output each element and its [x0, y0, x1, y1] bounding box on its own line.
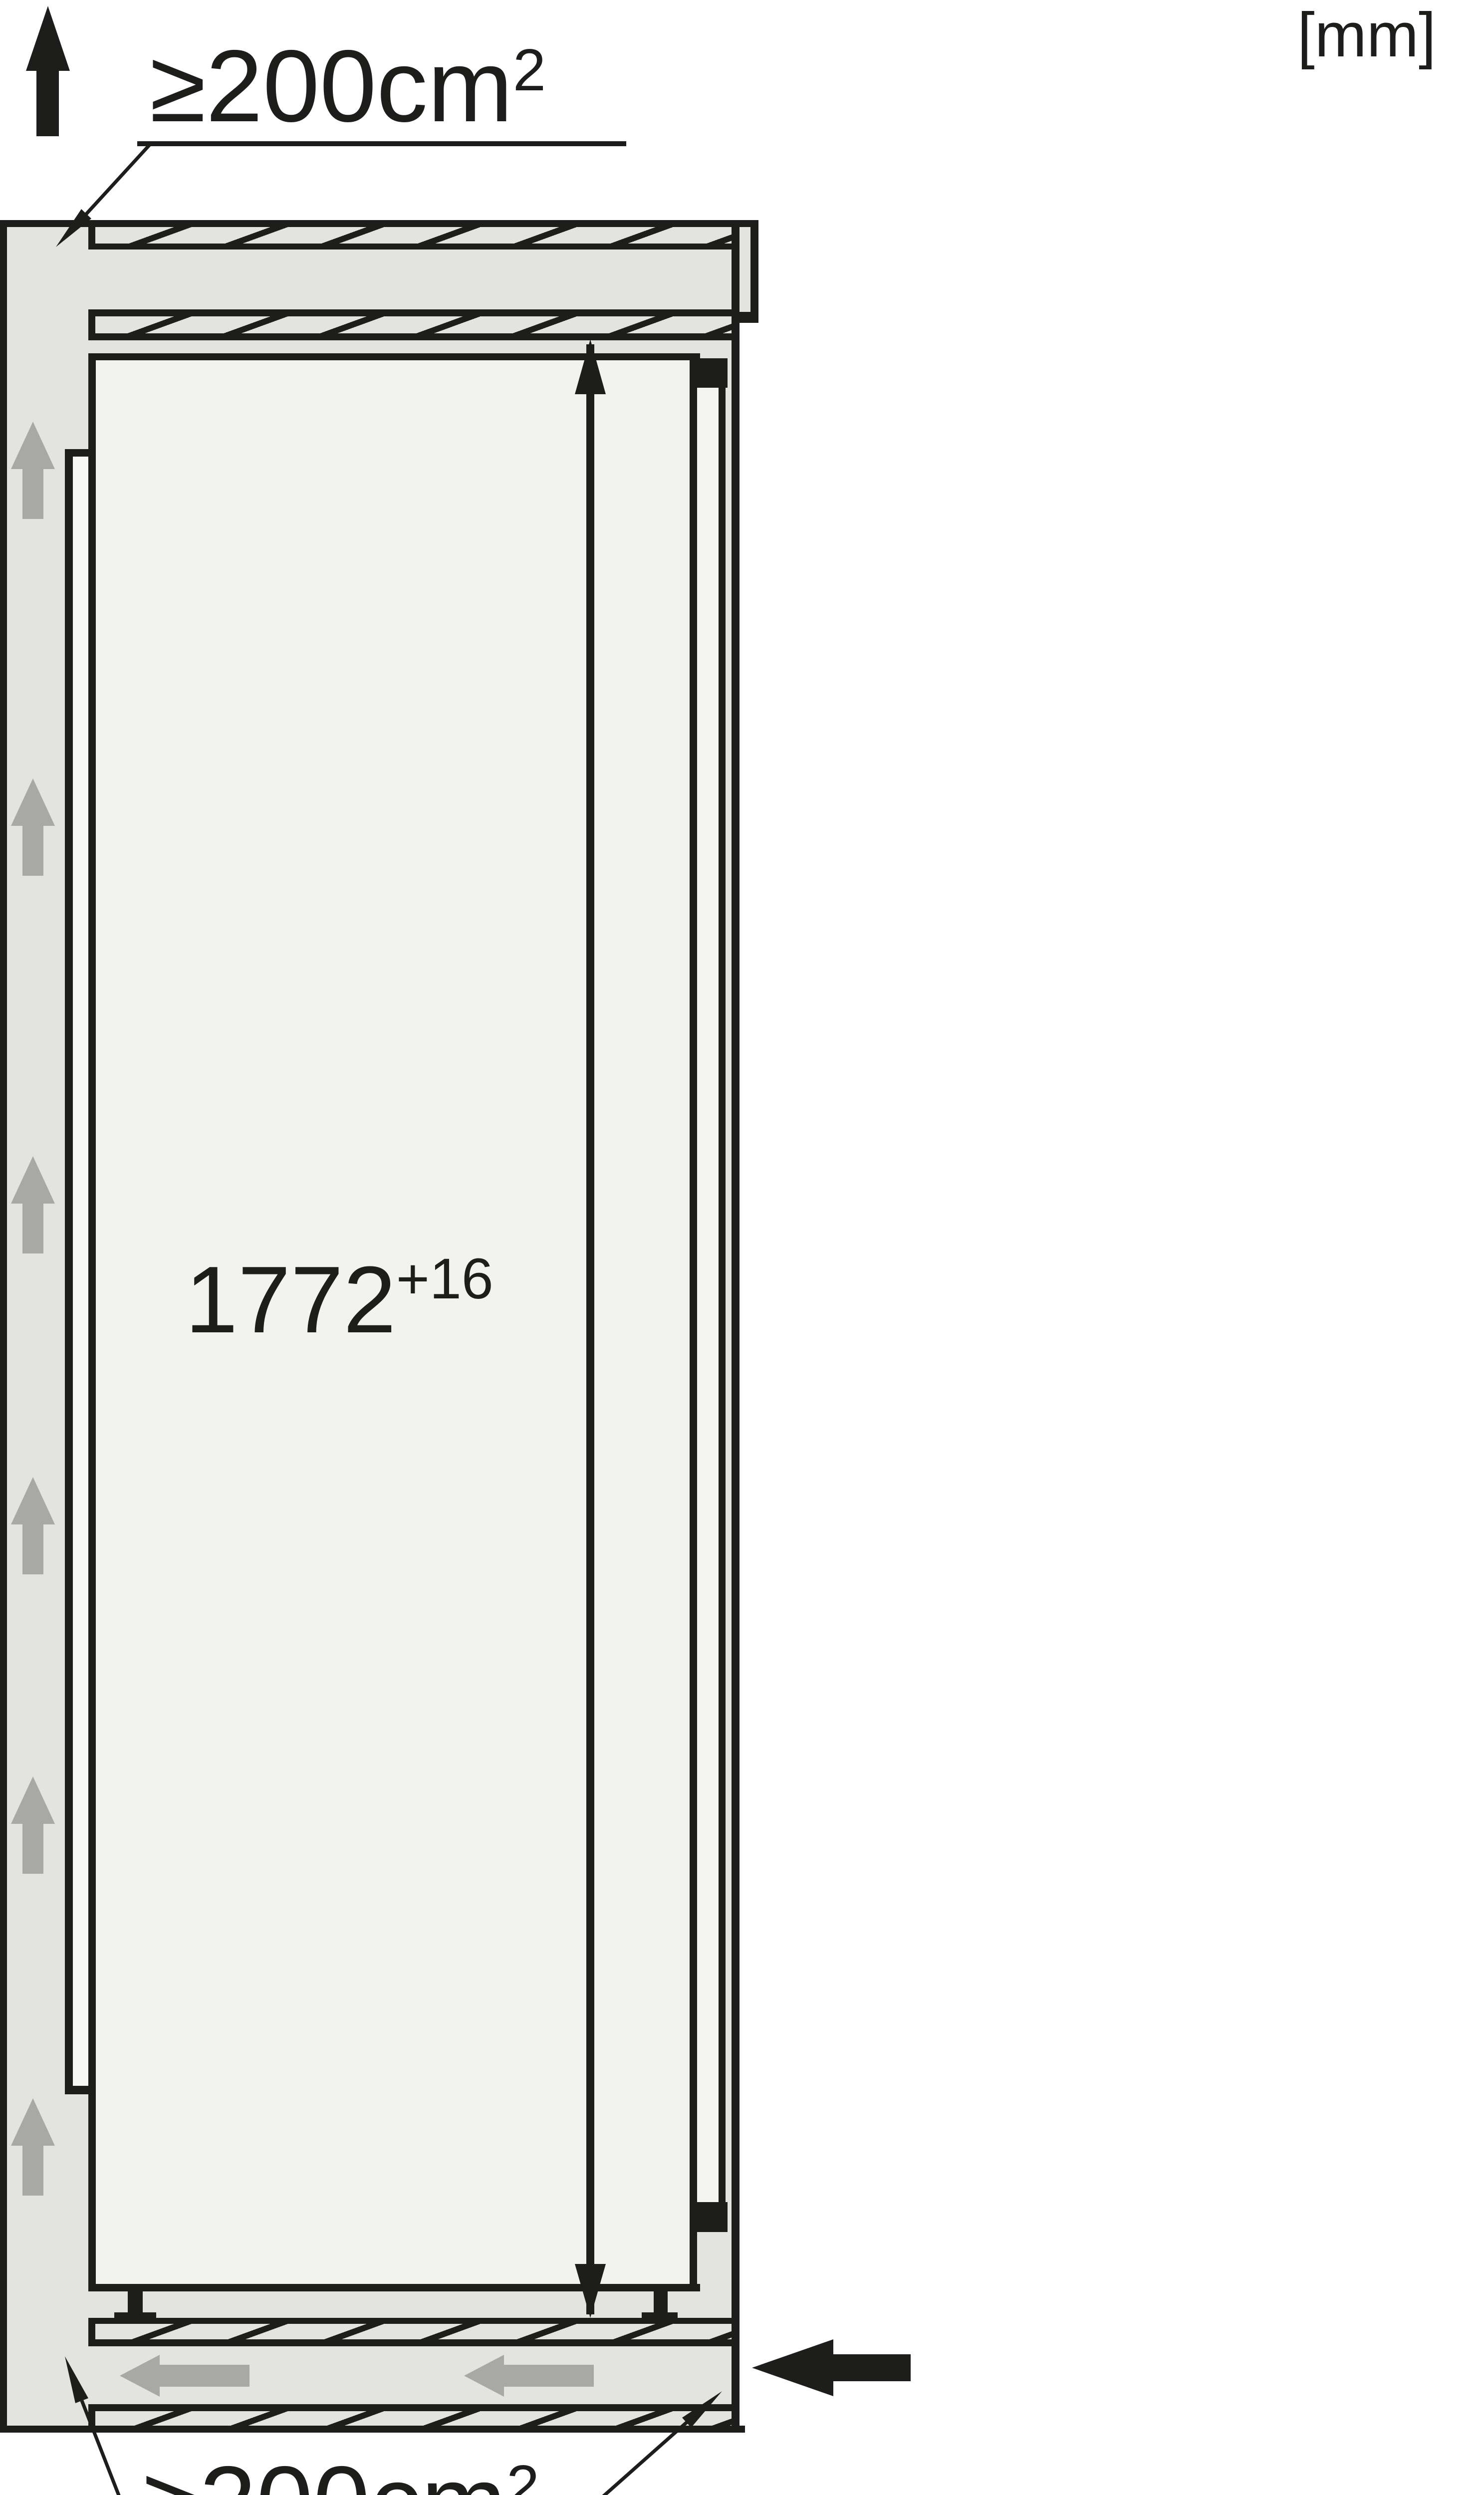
dimension-arrow: [575, 339, 606, 2318]
airflow-up-arrows: [11, 422, 55, 2196]
leader-arrowhead-icon: [682, 2391, 722, 2428]
exhaust-air-arrow-icon: [26, 6, 70, 136]
unit-label: [mm]: [1297, 4, 1436, 66]
airflow-left-arrow-icon: [120, 2355, 249, 2397]
bottom-vent-area-sup: 2: [506, 2453, 539, 2495]
airflow-up-arrow-icon: [11, 1477, 55, 1574]
niche-height-dimension-label: 1772+16: [185, 1252, 494, 1347]
airflow-up-arrow-icon: [11, 778, 55, 876]
airflow-left-arrows: [120, 2355, 594, 2397]
leader-bottom-vent-right: [544, 2391, 722, 2495]
dimension-arrowhead-up-icon: [575, 339, 606, 394]
airflow-up-arrow-icon: [11, 422, 55, 519]
leader-arrowhead-icon: [65, 2356, 88, 2403]
leader-arrowhead-icon: [56, 209, 91, 247]
bottom-vent-area-label: ≥200cm2: [143, 2451, 539, 2495]
leader-top-vent: [56, 145, 150, 247]
installation-diagram: [mm] ≥200cm2 1772+16 ≥200cm2: [0, 0, 1484, 2495]
top-vent-area-label: ≥200cm2: [150, 35, 546, 137]
niche-height-tolerance: +16: [396, 1247, 494, 1311]
dimension-arrowhead-down-icon: [575, 2264, 606, 2318]
airflow-left-arrow-icon: [464, 2355, 594, 2397]
air-inlet-arrow-icon: [752, 2339, 911, 2396]
airflow-up-arrow-icon: [11, 1776, 55, 1874]
unit-label-text: [mm]: [1297, 0, 1436, 70]
airflow-up-arrow-icon: [11, 2098, 55, 2196]
bottom-vent-area-value: ≥200cm: [143, 2445, 506, 2495]
niche-height-value: 1772: [185, 1247, 396, 1353]
top-vent-area-sup: 2: [513, 37, 546, 103]
airflow-up-arrow-icon: [11, 1156, 55, 1253]
top-vent-area-value: ≥200cm: [150, 29, 513, 143]
